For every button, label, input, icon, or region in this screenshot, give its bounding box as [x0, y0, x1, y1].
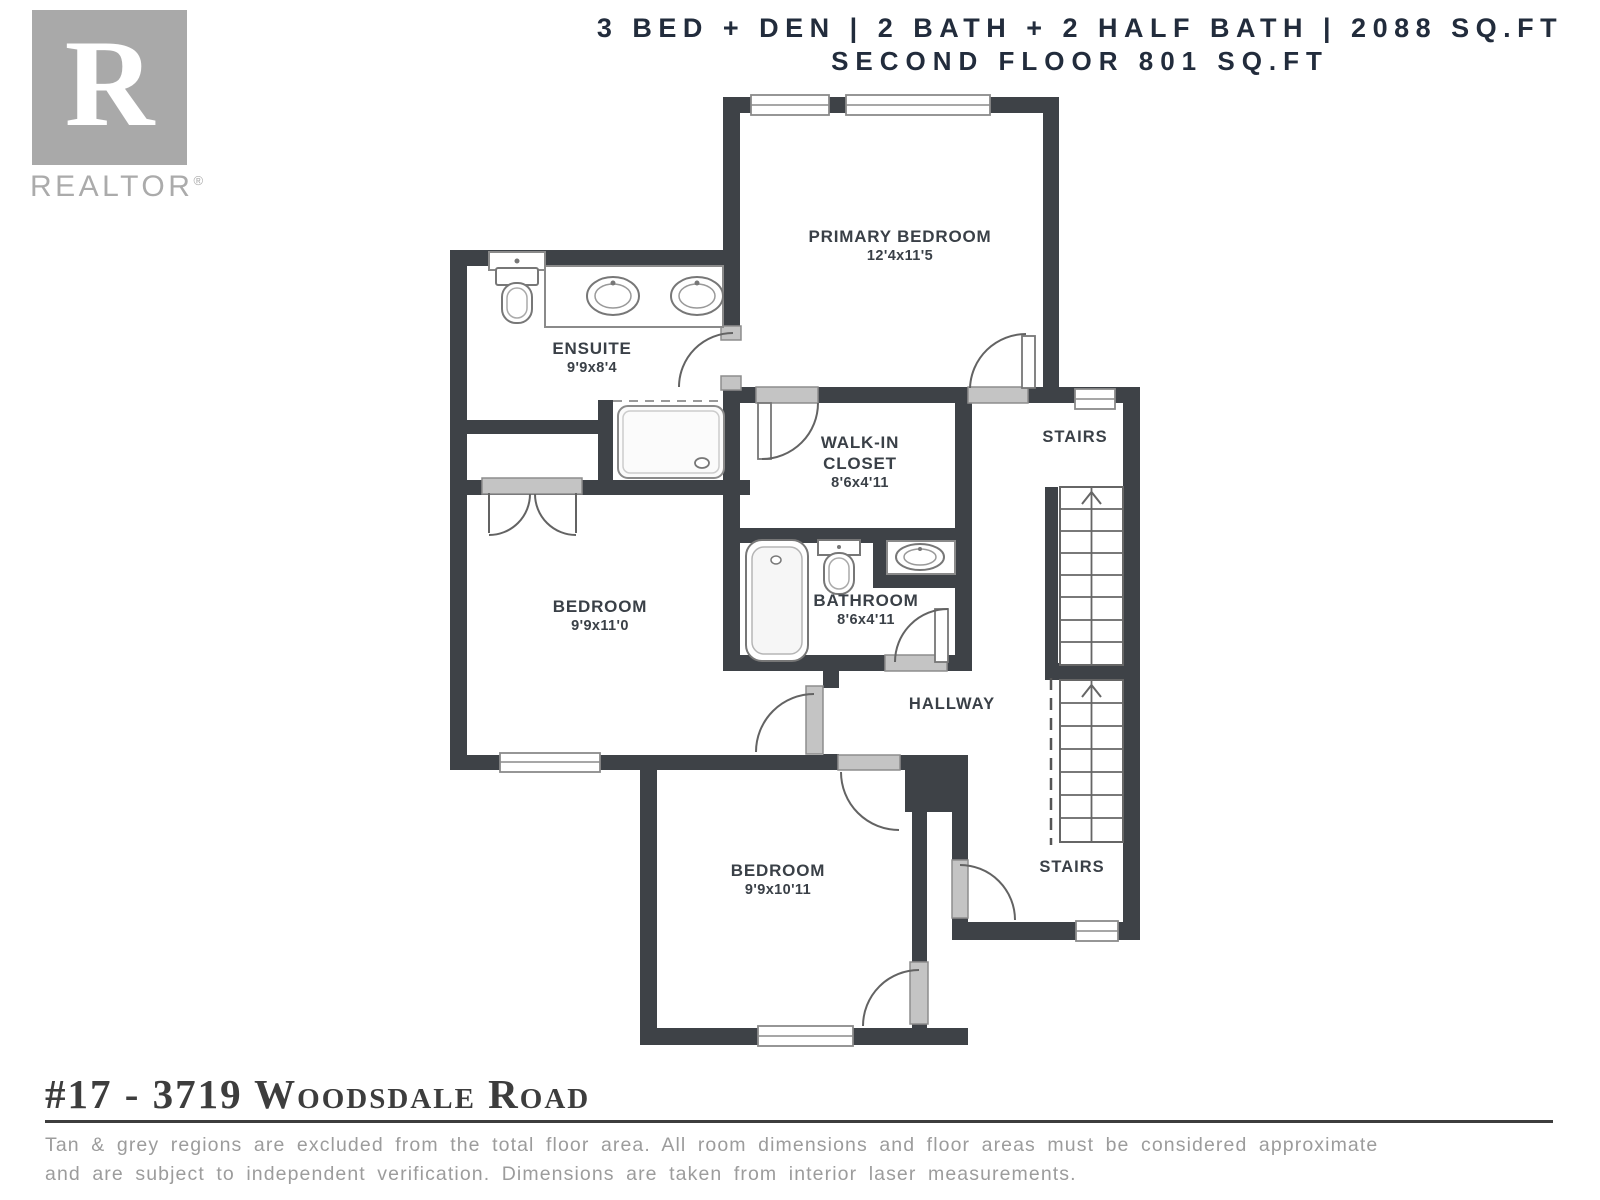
- staircase-lower-icon: [1060, 680, 1123, 842]
- room-dims: 8'6x4'11: [812, 474, 908, 493]
- toilet-icon: [818, 540, 860, 594]
- disclaimer-line-1: Tan & grey regions are excluded from the…: [45, 1131, 1565, 1160]
- bathtub-icon: [746, 540, 808, 661]
- closet-door-arc-left: [489, 494, 530, 535]
- staircase-upper-icon: [1060, 487, 1123, 665]
- disclaimer: Tan & grey regions are excluded from the…: [45, 1131, 1565, 1189]
- room-name: BATHROOM: [813, 590, 918, 611]
- address-title: #17 - 3719 Woodsdale Road: [45, 1070, 590, 1118]
- room-label-bathroom: BATHROOM 8'6x4'11: [813, 590, 918, 630]
- room-label-bedroom-mid: BEDROOM 9'9x11'0: [553, 596, 647, 636]
- divider-rule: [45, 1120, 1553, 1123]
- room-dims: 9'9x8'4: [552, 359, 631, 378]
- room-label-bedroom-lower: BEDROOM 9'9x10'11: [731, 860, 825, 900]
- door-arc-bedroom-lower-top: [841, 772, 899, 830]
- sink-icon: [887, 541, 955, 574]
- room-label-walk-in-closet: WALK-IN CLOSET 8'6x4'11: [812, 432, 908, 493]
- room-name: BEDROOM: [553, 596, 647, 617]
- room-dims: 8'6x4'11: [813, 611, 918, 630]
- window-icon: [758, 1026, 853, 1046]
- room-label-primary-bedroom: PRIMARY BEDROOM 12'4x11'5: [809, 226, 992, 266]
- window-icon: [1076, 921, 1118, 941]
- window-icon: [500, 753, 600, 772]
- room-name: WALK-IN CLOSET: [812, 432, 908, 474]
- room-name: BEDROOM: [731, 860, 825, 881]
- shower-icon: [618, 406, 724, 478]
- room-dims: 9'9x10'11: [731, 881, 825, 900]
- toilet-icon: [489, 252, 545, 323]
- floorplan-page: 3 BED + DEN | 2 BATH + 2 HALF BATH | 208…: [0, 0, 1600, 1200]
- label-stairs-lower: STAIRS: [1039, 858, 1104, 877]
- label-hallway: HALLWAY: [909, 695, 995, 714]
- double-vanity-icon: [545, 266, 723, 327]
- window-icon: [846, 95, 990, 115]
- room-name: PRIMARY BEDROOM: [809, 226, 992, 247]
- disclaimer-line-2: and are subject to independent verificat…: [45, 1160, 1565, 1189]
- door-arc-primary-bedroom: [970, 334, 1026, 388]
- label-stairs-upper: STAIRS: [1042, 428, 1107, 447]
- room-dims: 12'4x11'5: [809, 247, 992, 266]
- room-dims: 9'9x11'0: [553, 617, 647, 636]
- staircases: [1060, 487, 1123, 842]
- floorplan-drawing: [0, 0, 1600, 1200]
- room-name: ENSUITE: [552, 338, 631, 359]
- closet-door-arc-right: [535, 494, 576, 535]
- window-icon: [1075, 389, 1115, 409]
- room-label-ensuite: ENSUITE 9'9x8'4: [552, 338, 631, 378]
- window-icon: [751, 95, 829, 115]
